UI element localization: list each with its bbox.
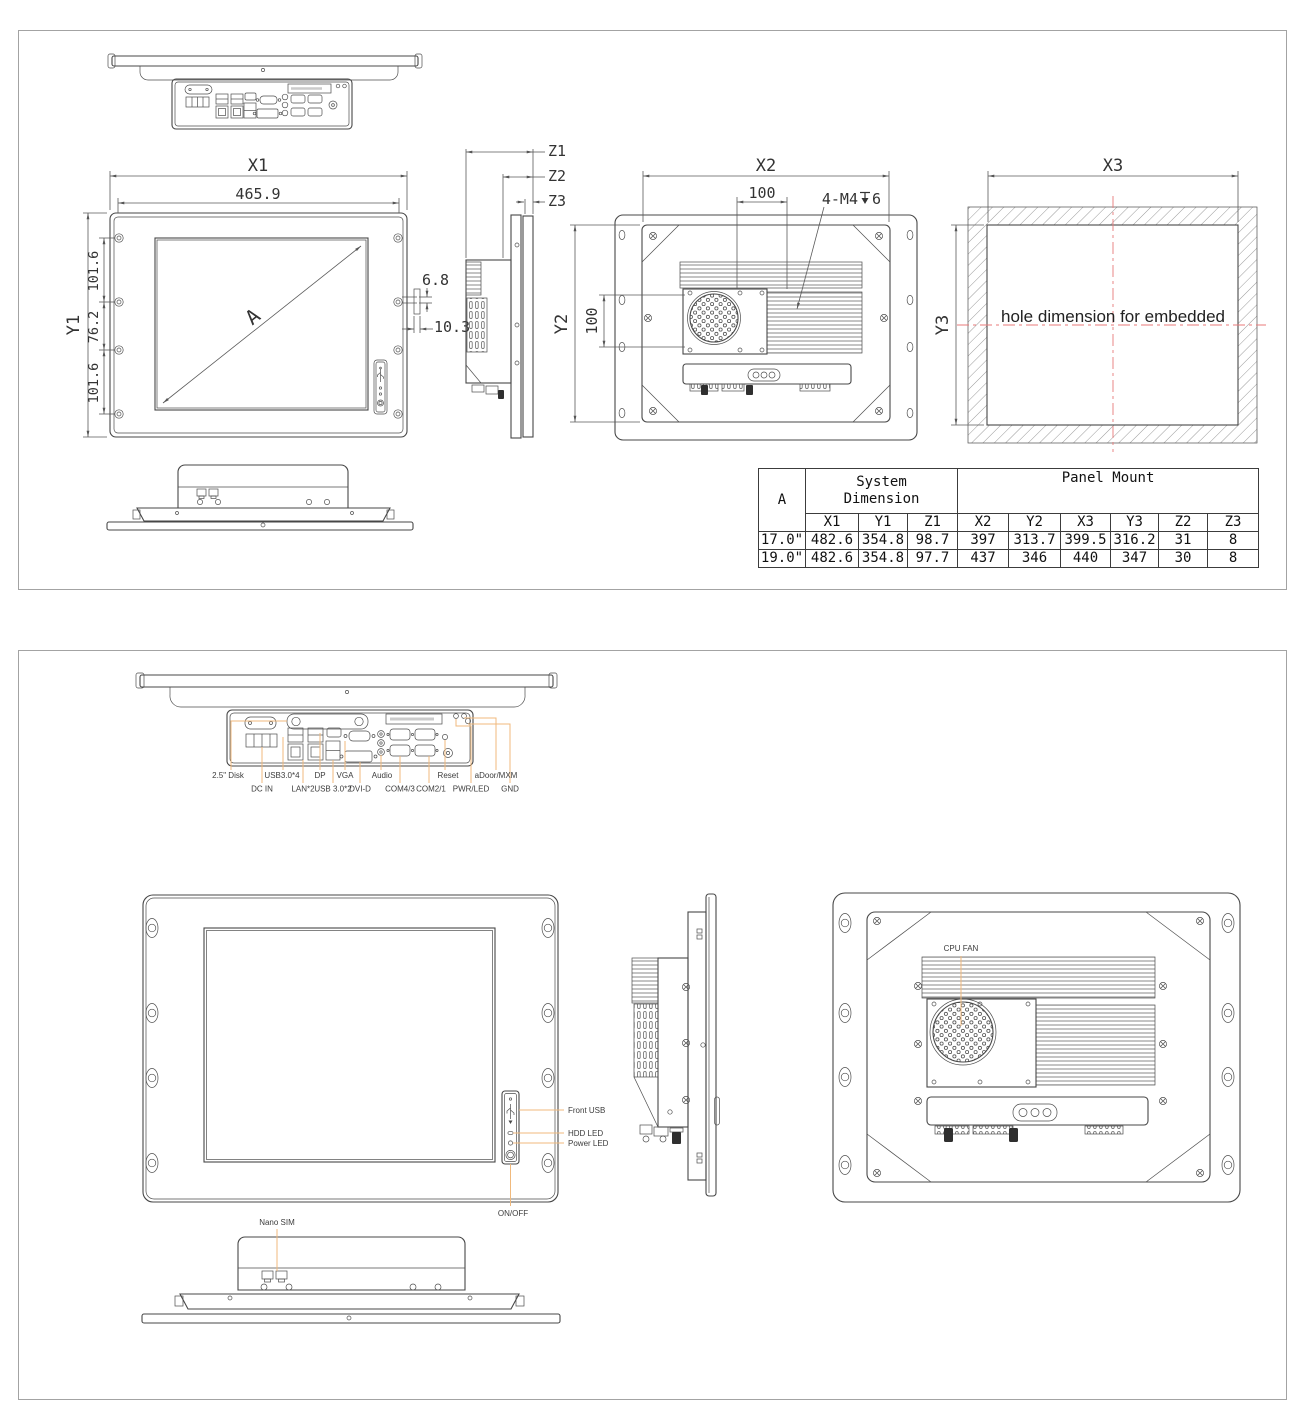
thread-callout: 4-M4 [822,190,858,208]
table-header: X3 [1061,514,1111,532]
io-label-disk: 2.5" Disk [212,771,245,780]
sheet1-top-view [108,54,422,129]
label-cpu-fan: CPU FAN [944,944,979,953]
sheet1-front-view: A X1 465.9 Y1 101.6 76.2 101.6 6.8 10.3 [64,156,470,437]
io-label-usb30x2: USB 3.0*2 [314,785,352,794]
table-header-row: X1 Y1 Z1 X2 Y2 X3 Y3 Z2 Z3 [759,514,1259,532]
io-label-lan: LAN*2 [291,785,315,794]
dimension-table-grid: A System Dimension Panel Mount X1 Y1 Z1 … [758,468,1259,568]
dim-chain-1: 101.6 [86,251,102,292]
dim-x3: X3 [1103,156,1123,176]
sheet1-side-view: Z1 Z2 Z3 [466,142,566,438]
label-front-usb: Front USB [568,1106,605,1115]
technical-drawing: A X1 465.9 Y1 101.6 76.2 101.6 6.8 10.3 … [0,0,1305,1418]
dim-a: A [240,303,264,329]
sheet2-rear-view: CPU FAN [833,893,1240,1202]
table-cell: 8 [1208,550,1259,568]
table-header: X1 [806,514,859,532]
dim-y3: Y3 [933,315,953,335]
dim-chain-2: 76.2 [86,311,102,344]
table-header: Y1 [859,514,908,532]
io-label-dvid: DVI-D [349,785,371,794]
dim-103: 10.3 [434,318,470,336]
table-header: Y3 [1111,514,1159,532]
io-label-pwrled: PWR/LED [453,785,490,794]
table-row: 19.0" 482.6 354.8 97.7 437 346 440 347 3… [759,550,1259,568]
table-header: Z1 [908,514,958,532]
table-cell: 316.2 [1111,532,1159,550]
sheet2-front-view: Front USB HDD LED Power LED ON/OFF [143,895,609,1218]
embedded-note: hole dimension for embedded [1001,307,1225,326]
table-group-system: System Dimension [806,469,958,514]
table-header: Z3 [1208,514,1259,532]
table-cell: 399.5 [1061,532,1111,550]
table-header: Z2 [1159,514,1208,532]
label-power-led: Power LED [568,1139,609,1148]
dimension-table: A System Dimension Panel Mount X1 Y1 Z1 … [758,468,1259,568]
dim-100h: 100 [748,184,775,202]
table-cell: 31 [1159,532,1208,550]
table-cell: 8 [1208,532,1259,550]
dim-z3: Z3 [548,192,566,210]
table-cell: 97.7 [908,550,958,568]
sheet1-embedded-view: hole dimension for embedded X3 Y3 [933,156,1266,452]
depth-symbol-icon [860,193,870,205]
dim-chain-3: 101.6 [86,363,102,404]
table-group-panel: Panel Mount [958,469,1259,514]
label-hdd-led: HDD LED [568,1129,603,1138]
io-label-com43: COM4/3 [385,785,415,794]
io-label-dp: DP [314,771,325,780]
table-cell: 437 [958,550,1009,568]
io-label-com21: COM2/1 [416,785,446,794]
table-cell: 17.0" [759,532,806,550]
table-cell: 98.7 [908,532,958,550]
table-cell: 354.8 [859,550,908,568]
io-label-gnd: GND [501,785,519,794]
drawing-page: A X1 465.9 Y1 101.6 76.2 101.6 6.8 10.3 … [0,0,1305,1418]
dim-y2: Y2 [552,314,572,334]
label-on-off: ON/OFF [498,1209,528,1218]
dim-68: 6.8 [422,271,449,289]
label-nano-sim: Nano SIM [259,1218,295,1227]
table-cell: 354.8 [859,532,908,550]
dim-x1: X1 [248,156,268,176]
dim-100v: 100 [583,307,601,334]
io-label-reset: Reset [438,771,460,780]
table-cell: 397 [958,532,1009,550]
table-cell: 313.7 [1009,532,1061,550]
table-cell: 482.6 [806,532,859,550]
table-header: Y2 [1009,514,1061,532]
table-cell: 482.6 [806,550,859,568]
sheet2-top-view: 2.5" Disk USB3.0*4 DP VGA Audio Reset aD… [136,673,557,794]
dim-x2: X2 [756,156,776,176]
sheet1-bottom-view [107,465,413,530]
io-label-vga: VGA [337,771,355,780]
table-cell: 347 [1111,550,1159,568]
sheet2-bottom-view: Nano SIM [142,1218,560,1323]
dim-z2: Z2 [548,167,566,185]
io-label-usb30x4: USB3.0*4 [264,771,300,780]
sheet1-rear-view: X2 100 4-M4 6 Y2 100 [552,156,917,440]
thread-depth: 6 [872,190,881,208]
dim-465: 465.9 [235,185,280,203]
sheet2-side-view [632,894,720,1196]
io-label-dcin: DC IN [251,785,273,794]
table-cell: 346 [1009,550,1061,568]
table-cell: 30 [1159,550,1208,568]
table-row: 17.0" 482.6 354.8 98.7 397 313.7 399.5 3… [759,532,1259,550]
table-col-a: A [759,469,806,532]
dim-y1: Y1 [64,315,84,335]
table-cell: 440 [1061,550,1111,568]
table-header: X2 [958,514,1009,532]
io-label-audio: Audio [372,771,393,780]
io-label-adoor: aDoor/MXM [475,771,518,780]
table-cell: 19.0" [759,550,806,568]
dim-z1: Z1 [548,142,566,160]
